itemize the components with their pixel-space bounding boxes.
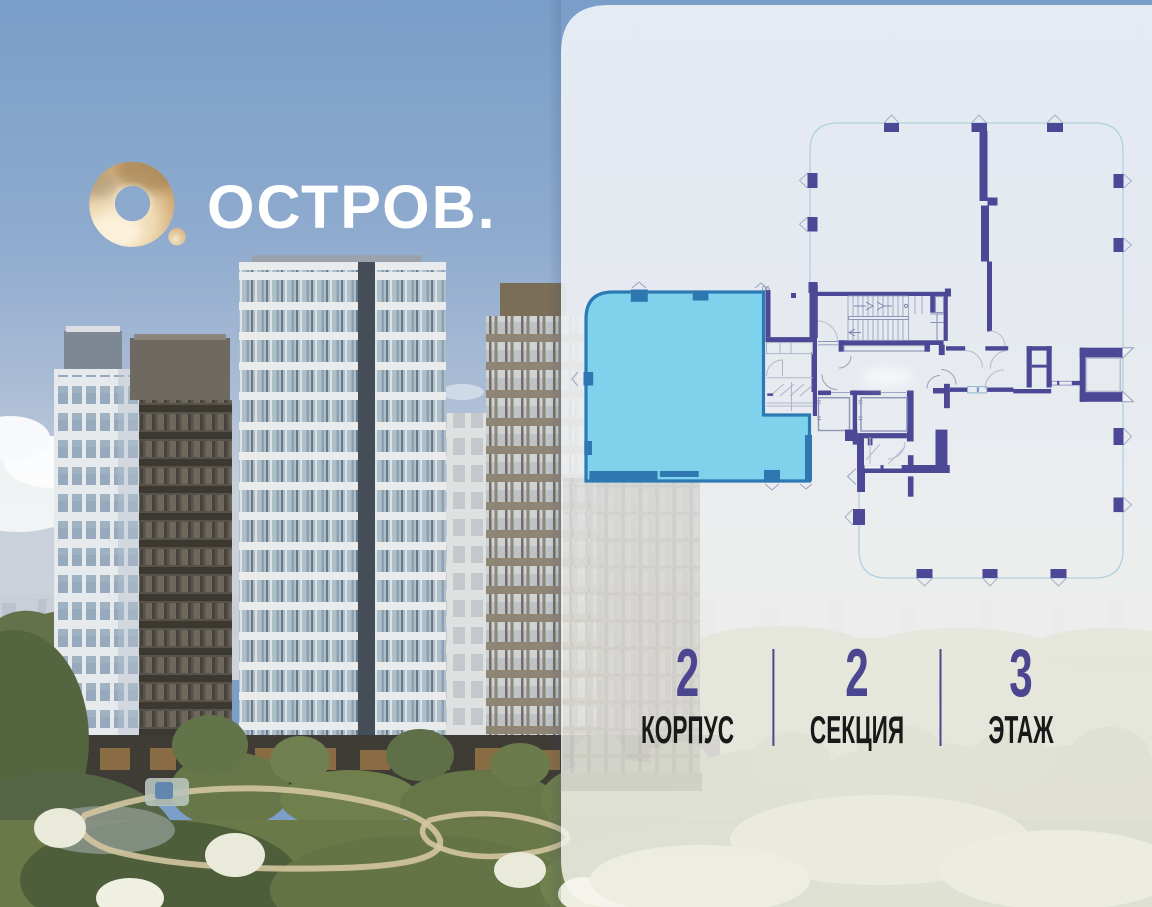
svg-text:2: 2 bbox=[845, 635, 868, 711]
svg-text:ОСТРОВ.: ОСТРОВ. bbox=[207, 173, 497, 241]
svg-text:КОРПУС: КОРПУС bbox=[641, 708, 734, 752]
svg-text:СЕКЦИЯ: СЕКЦИЯ bbox=[810, 708, 904, 752]
svg-text:2: 2 bbox=[676, 635, 699, 711]
svg-text:ЭТАЖ: ЭТАЖ bbox=[988, 708, 1053, 752]
svg-text:3: 3 bbox=[1009, 635, 1032, 711]
